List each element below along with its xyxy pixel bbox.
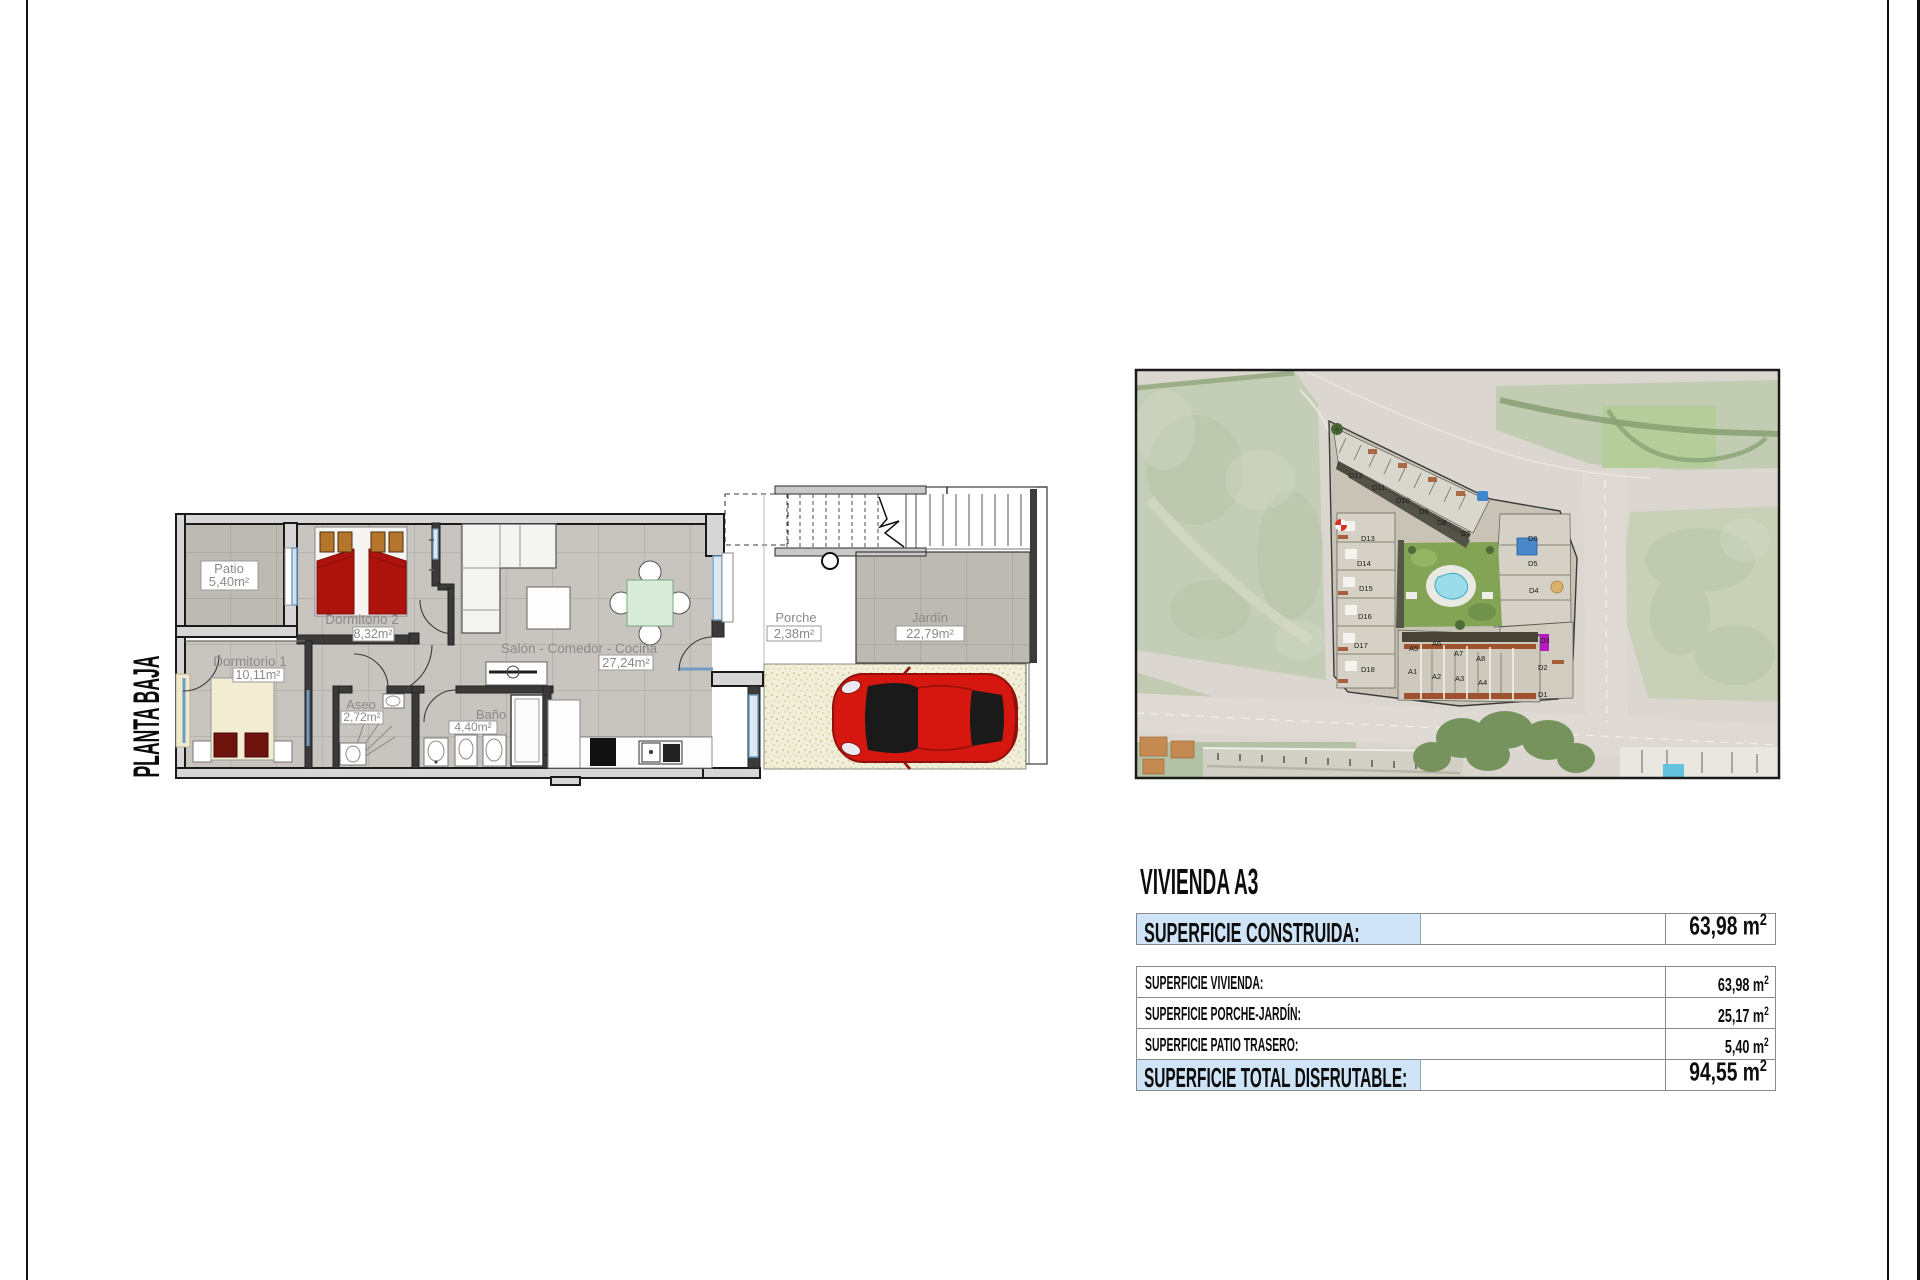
- svg-text:A5: A5: [1409, 644, 1418, 653]
- svg-text:Dormitorio 2: Dormitorio 2: [325, 612, 399, 627]
- svg-text:D3: D3: [1540, 636, 1550, 645]
- svg-text:22,79m²: 22,79m²: [906, 626, 954, 641]
- svg-text:2,38m²: 2,38m²: [774, 626, 815, 641]
- svg-text:D14: D14: [1357, 559, 1371, 568]
- svg-text:D13: D13: [1361, 534, 1375, 543]
- svg-text:Porche: Porche: [775, 610, 816, 625]
- svg-text:A8: A8: [1476, 654, 1485, 663]
- svg-text:2,72m²: 2,72m²: [343, 710, 380, 724]
- svg-text:D9: D9: [1419, 507, 1429, 516]
- svg-text:D15: D15: [1359, 584, 1373, 593]
- svg-text:D4: D4: [1529, 586, 1539, 595]
- svg-text:A2: A2: [1432, 672, 1441, 681]
- svg-text:D18: D18: [1361, 665, 1375, 674]
- svg-text:D5: D5: [1528, 559, 1538, 568]
- svg-text:5,40m²: 5,40m²: [209, 574, 250, 589]
- svg-text:A6: A6: [1432, 639, 1441, 648]
- svg-text:Dormitorio 1: Dormitorio 1: [213, 654, 287, 669]
- svg-text:4,40m²: 4,40m²: [454, 720, 491, 734]
- svg-text:D16: D16: [1358, 612, 1372, 621]
- svg-text:A1: A1: [1408, 667, 1417, 676]
- svg-text:Salón - Comedor - Cocina: Salón - Comedor - Cocina: [501, 641, 658, 656]
- svg-text:A4: A4: [1478, 678, 1487, 687]
- svg-text:A3: A3: [1455, 674, 1464, 683]
- svg-text:D2: D2: [1538, 663, 1548, 672]
- svg-text:D7: D7: [1461, 529, 1471, 538]
- svg-text:A7: A7: [1454, 649, 1463, 658]
- svg-text:D8: D8: [1437, 518, 1447, 527]
- svg-text:D17: D17: [1354, 641, 1368, 650]
- svg-text:D10: D10: [1396, 496, 1410, 505]
- svg-text:D11: D11: [1372, 483, 1385, 492]
- svg-text:D12: D12: [1349, 471, 1363, 480]
- svg-text:27,24m²: 27,24m²: [602, 655, 650, 670]
- svg-text:D6: D6: [1528, 534, 1538, 543]
- svg-text:Jardín: Jardín: [912, 610, 948, 625]
- svg-text:10,11m²: 10,11m²: [236, 668, 281, 682]
- svg-text:8,32m²: 8,32m²: [354, 627, 393, 641]
- svg-text:D1: D1: [1538, 690, 1548, 699]
